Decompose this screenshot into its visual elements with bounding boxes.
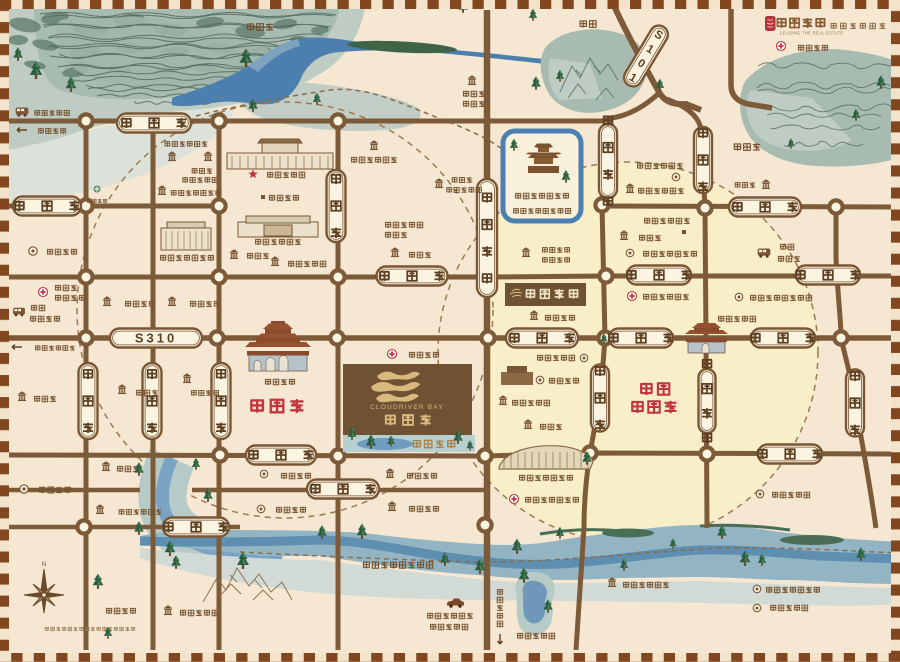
svg-text:S310: S310 xyxy=(135,331,177,346)
svg-text:LEADING THE REAL ESTATE: LEADING THE REAL ESTATE xyxy=(780,31,844,36)
svg-text:CLOUDRIVER BAY: CLOUDRIVER BAY xyxy=(370,404,444,411)
svg-text:N: N xyxy=(42,562,46,568)
